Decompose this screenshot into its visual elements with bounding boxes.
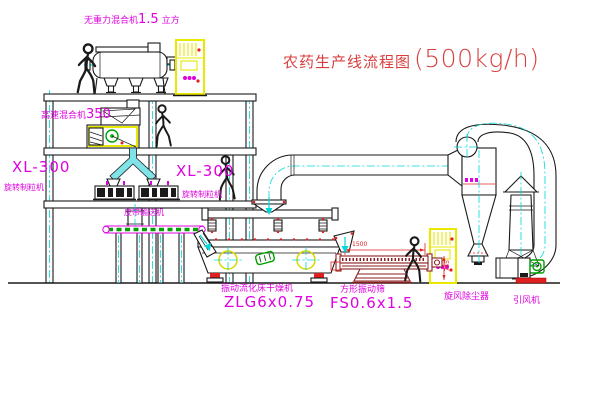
belt-conveyor-label: 皮带输送机 (124, 209, 164, 217)
fluid-bed-dryer (198, 208, 354, 282)
fan-base (516, 278, 546, 283)
granulator-left-name: 旋转制粒机 (4, 184, 44, 192)
pesticide-line-flow-diagram: 农药生产线流程图(500kg/h) 无重力混合机1.5 立方 高速混合机350 … (0, 0, 600, 403)
person (156, 105, 171, 146)
floor-slab (44, 94, 256, 101)
dimension-1500: 1500 (352, 242, 367, 248)
sieve-motor (432, 258, 442, 267)
granulator-right-name: 旋转制粒机 (182, 191, 222, 199)
mixer-discharge-valves (104, 78, 168, 93)
gravity-free-mixer (84, 43, 176, 94)
granulator-left-model: XL-300 (12, 160, 70, 175)
control-cabinet (430, 229, 456, 283)
high-speed-mixer-label: 高速混合机350 (41, 108, 111, 121)
granulator-right-model: XL-300 (176, 164, 234, 179)
diagram-title: 农药生产线流程图(500kg/h) (283, 46, 540, 71)
granulator-right-unit (137, 179, 180, 200)
title-text: 农药生产线流程图 (283, 55, 411, 70)
square-sieve-model: FS0.6x1.5 (330, 296, 413, 311)
floor-slab (44, 201, 256, 208)
cyclone-label: 旋风除尘器 (444, 293, 489, 302)
cabinet-marking (183, 76, 200, 83)
dimension-745: 745 (445, 260, 451, 271)
exhaust-duct (252, 155, 450, 214)
fan-label: 引风机 (513, 297, 540, 306)
control-cabinet (173, 40, 207, 96)
fluid-bed-dryer-model: ZLG6x0.75 (224, 295, 315, 310)
granulator-left-unit (93, 179, 136, 200)
cyclone-marking (465, 178, 478, 182)
induced-draft-fan (496, 258, 546, 283)
floor-slab (44, 148, 256, 155)
title-capacity: (500kg/h) (414, 46, 539, 71)
support-feet (207, 273, 327, 282)
gravity-mixer-label: 无重力混合机1.5 立方 (84, 13, 180, 26)
